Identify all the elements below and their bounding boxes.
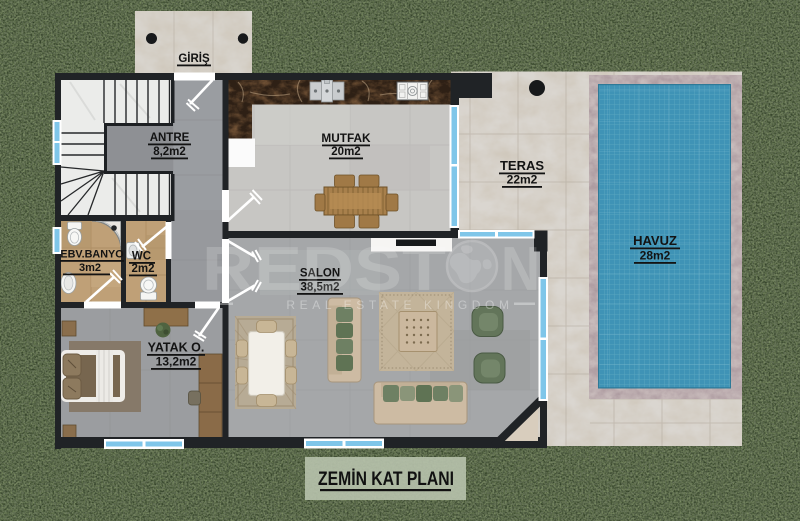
svg-text:HAVUZ: HAVUZ	[633, 233, 677, 248]
svg-text:ANTRE: ANTRE	[150, 132, 190, 144]
svg-text:TERAS: TERAS	[500, 158, 544, 173]
svg-text:28m2: 28m2	[640, 249, 671, 263]
svg-text:YATAK O.: YATAK O.	[148, 341, 205, 355]
svg-text:8,2m2: 8,2m2	[153, 146, 186, 158]
svg-text:13,2m2: 13,2m2	[156, 355, 197, 369]
svg-text:REDST: REDST	[202, 235, 446, 304]
svg-text:EBV.BANYO: EBV.BANYO	[60, 249, 123, 261]
svg-text:2m2: 2m2	[131, 263, 154, 275]
svg-text:ZEMİN KAT PLANI: ZEMİN KAT PLANI	[318, 469, 454, 490]
svg-text:N: N	[501, 235, 540, 304]
svg-text:MUTFAK: MUTFAK	[321, 131, 371, 145]
svg-text:REAL ESTATE KINGDOM: REAL ESTATE KINGDOM	[286, 298, 513, 312]
svg-text:20m2: 20m2	[331, 146, 360, 158]
svg-text:GİRİŞ: GİRİŞ	[178, 52, 210, 65]
svg-text:3m2: 3m2	[79, 262, 101, 274]
svg-text:22m2: 22m2	[507, 173, 538, 187]
svg-text:WC: WC	[132, 251, 151, 263]
